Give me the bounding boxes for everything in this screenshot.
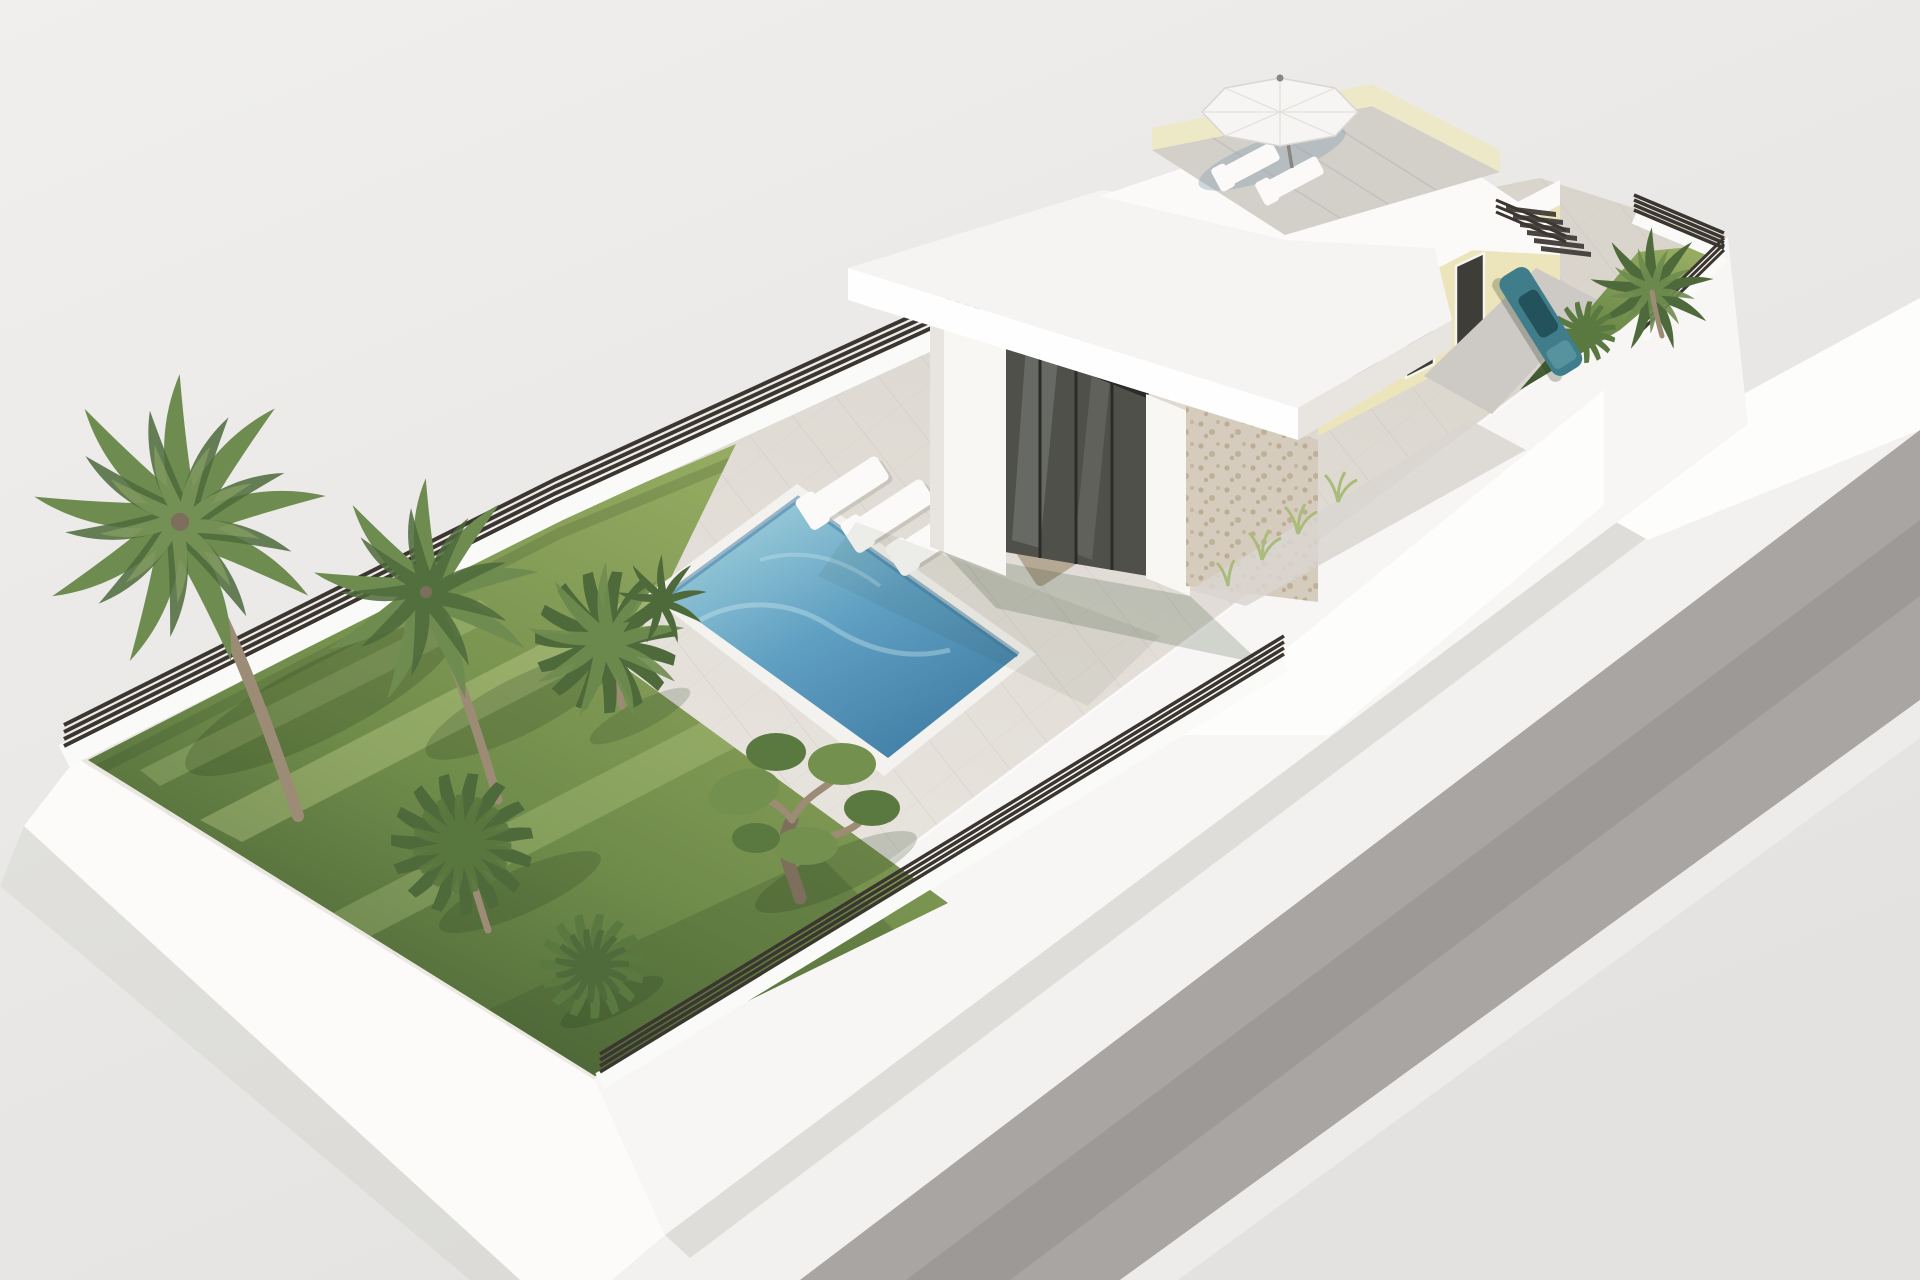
render-viewport: Aerial 3D visualization of an elevated r…: [0, 0, 1920, 1280]
render-canvas: [0, 0, 1920, 1280]
porch-column-right: [1146, 394, 1190, 596]
palm-crown-core: [420, 586, 432, 598]
olive-foliage: [746, 733, 806, 771]
porch-column-side: [930, 307, 944, 552]
olive-foliage: [844, 790, 900, 826]
parasol-seams: [1202, 78, 1358, 146]
parasol-finial: [1277, 75, 1284, 82]
olive-foliage: [808, 743, 876, 785]
palm-crown-core: [171, 513, 189, 531]
olive-foliage: [774, 827, 838, 865]
olive-foliage: [732, 823, 780, 853]
porch-column-left: [944, 312, 1006, 576]
